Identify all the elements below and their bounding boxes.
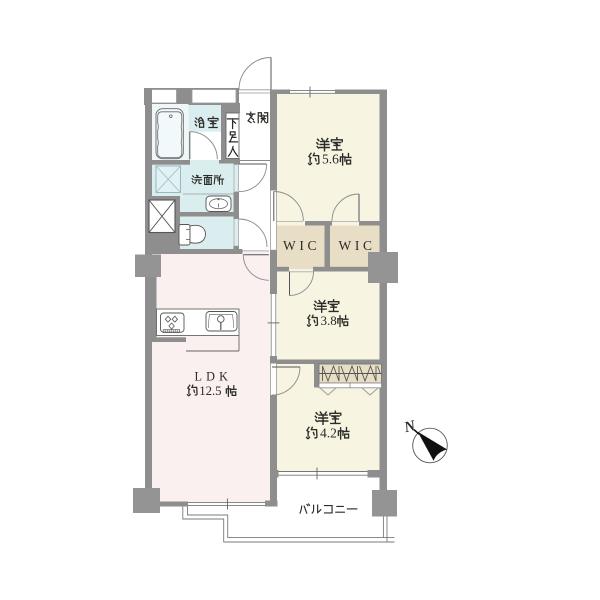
svg-text:WIC: WIC [283, 238, 320, 253]
svg-text:LDK: LDK [195, 369, 233, 383]
svg-text:5.6: 5.6 [322, 152, 339, 167]
svg-text:3.8: 3.8 [321, 313, 337, 328]
svg-text:4.2: 4.2 [320, 426, 337, 441]
svg-text:12.5: 12.5 [199, 384, 221, 398]
svg-text:WIC: WIC [339, 238, 376, 253]
